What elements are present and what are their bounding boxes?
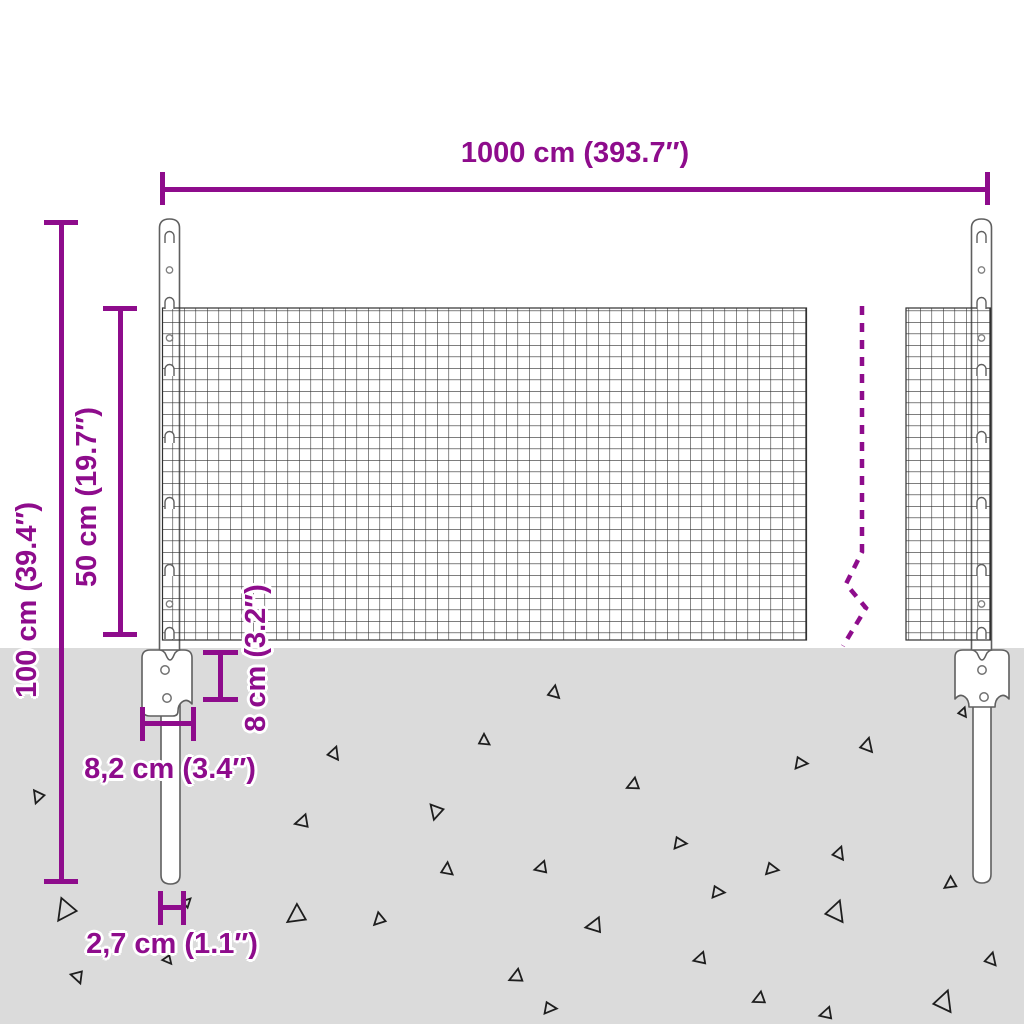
post-hook-icon (977, 365, 986, 377)
dim-total-height-label: 100 cm (39.4″) (10, 400, 44, 800)
post-hook-icon (977, 498, 986, 510)
dim-mesh-height-cap-bottom (103, 632, 137, 637)
post-hook-icon (165, 498, 174, 510)
dim-bracket-width-cap-right (191, 707, 196, 741)
post-hook-icon (165, 432, 174, 443)
dim-width-label: 1000 cm (393.7″) (363, 136, 787, 170)
dim-post-diameter-cap-right (181, 891, 186, 925)
bracket-hole-icon (978, 666, 986, 674)
post-hook-icon (977, 565, 986, 577)
dim-total-height-cap-bottom (44, 879, 78, 884)
post-hook-icon (165, 232, 174, 243)
dim-width-line (162, 187, 988, 192)
dim-width-cap-right (985, 172, 990, 205)
dim-bracket-height-cap-bottom (203, 697, 238, 702)
post-hole-icon (166, 601, 172, 607)
post-hook-icon (977, 232, 986, 243)
post-hook-icon (165, 565, 174, 577)
post-hole-icon (978, 267, 984, 273)
post-hook-icon (165, 298, 174, 310)
post-hole-icon (166, 335, 172, 341)
dim-post-diameter-cap-left (158, 891, 163, 925)
dim-mesh-height-line (118, 308, 123, 637)
dim-total-height-cap-top (44, 220, 78, 225)
bracket-hole-icon (163, 694, 171, 702)
dim-mesh-height-cap-top (103, 306, 137, 311)
mesh-panel-right (906, 308, 991, 640)
dim-bracket-width-cap-left (140, 707, 145, 741)
dim-bracket-width-line (142, 721, 196, 726)
break-line (843, 306, 866, 646)
post-hole-icon (978, 601, 984, 607)
post-hook-icon (977, 628, 986, 640)
bracket-hole-icon (161, 666, 169, 674)
dim-bracket-width-label: 8,2 cm (3.4″) (0, 752, 370, 786)
bracket-hole-icon (980, 693, 988, 701)
post-hook-icon (977, 298, 986, 310)
dim-mesh-height-label: 50 cm (19.7″) (70, 297, 104, 697)
dim-bracket-height-line (218, 652, 223, 700)
fence-dimension-diagram: 1000 cm (393.7″) 100 cm (39.4″) 50 cm (1… (0, 0, 1024, 1024)
post-hook-icon (165, 628, 174, 640)
post-hook-icon (977, 432, 986, 443)
post-hole-icon (978, 335, 984, 341)
post-hook-icon (165, 365, 174, 377)
post-hole-icon (166, 267, 172, 273)
dim-bracket-height-label: 8 cm (3.2″) (239, 458, 273, 858)
dim-post-diameter-label: 2,7 cm (1.1″) (0, 927, 372, 961)
dim-bracket-height-cap-top (203, 650, 238, 655)
dim-width-cap-left (160, 172, 165, 205)
